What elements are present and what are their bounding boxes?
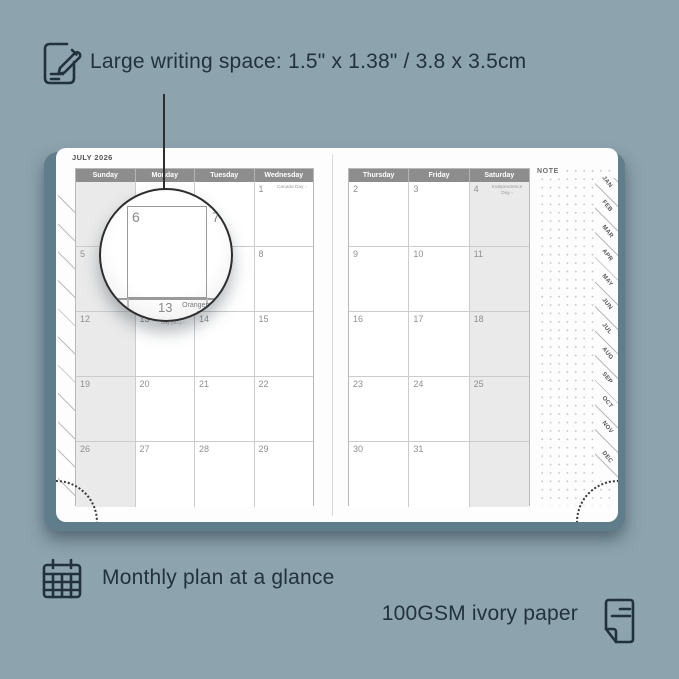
day-header: Sunday bbox=[76, 169, 136, 182]
calendar-cell: 30 bbox=[349, 442, 409, 507]
month-title: JULY 2026 bbox=[72, 153, 113, 162]
day-header: Thursday bbox=[349, 169, 409, 182]
calendar-cell: 8 bbox=[255, 247, 314, 312]
calendar-cell: 10 bbox=[409, 247, 469, 312]
calendar-cell: 17 bbox=[409, 312, 469, 377]
zoomed-grid-line bbox=[127, 299, 129, 320]
tab-jun: JUN bbox=[600, 297, 617, 316]
calendar-cell: 27 bbox=[136, 442, 196, 507]
pointer-line bbox=[163, 94, 165, 195]
bottom-left-annotation-text: Monthly plan at a glance bbox=[102, 566, 334, 590]
date-number: 10 bbox=[413, 249, 423, 259]
pencil-note-icon bbox=[38, 34, 86, 88]
holiday-line-1: Orangemen's Day bbox=[175, 302, 231, 320]
tab-feb: FEB bbox=[600, 199, 617, 218]
calendar-cell: 20 bbox=[136, 377, 196, 442]
date-number: 24 bbox=[413, 379, 423, 389]
calendar-cell: 12 bbox=[76, 312, 136, 377]
zoomed-date-number: 6 bbox=[132, 209, 140, 225]
tab-sep: SEP bbox=[600, 371, 617, 390]
date-number: 28 bbox=[199, 444, 209, 454]
holiday-label: Independence Day ▫ bbox=[490, 185, 524, 197]
calendar-cell: 2 bbox=[349, 182, 409, 247]
day-header: Tuesday bbox=[195, 169, 255, 182]
calendar-cell: 18 bbox=[470, 312, 529, 377]
calendar-cell: 25 bbox=[470, 377, 529, 442]
calendar-cell: 9 bbox=[349, 247, 409, 312]
calendar-cell: 22 bbox=[255, 377, 314, 442]
calendar-grid-icon bbox=[40, 556, 84, 600]
date-number: 21 bbox=[199, 379, 209, 389]
date-number: 16 bbox=[353, 314, 363, 324]
calendar-cell: 11 bbox=[470, 247, 529, 312]
date-number: 12 bbox=[80, 314, 90, 324]
product-image: Large writing space: 1.5" x 1.38" / 3.8 … bbox=[0, 0, 679, 679]
date-number: 9 bbox=[353, 249, 358, 259]
date-number: 27 bbox=[140, 444, 150, 454]
calendar-cell: 4Independence Day ▫ bbox=[470, 182, 529, 247]
date-number: 2 bbox=[353, 184, 358, 194]
calendar-cell: 23 bbox=[349, 377, 409, 442]
calendar-cell: 29 bbox=[255, 442, 314, 507]
calendar-cell: 16 bbox=[349, 312, 409, 377]
tab-nov: NOV bbox=[600, 420, 617, 439]
calendar-cell bbox=[470, 442, 529, 507]
tab-dec: DEC bbox=[600, 450, 617, 469]
day-header-row: Sunday Monday Tuesday Wednesday bbox=[76, 169, 313, 182]
date-number: 17 bbox=[413, 314, 423, 324]
date-number: 15 bbox=[259, 314, 269, 324]
calendar-cell: 3 bbox=[409, 182, 469, 247]
day-header-row: Thursday Friday Saturday bbox=[349, 169, 529, 182]
date-number: 18 bbox=[474, 314, 484, 324]
tab-jul: JUL bbox=[600, 322, 617, 341]
bottom-right-annotation-text: 100GSM ivory paper bbox=[300, 602, 578, 626]
calendar-cell: 19 bbox=[76, 377, 136, 442]
date-number: 8 bbox=[259, 249, 264, 259]
calendar-cell: 14 bbox=[195, 312, 255, 377]
tab-jan: JAN bbox=[600, 175, 617, 194]
paper-sheet-icon bbox=[597, 595, 641, 647]
date-number: 26 bbox=[80, 444, 90, 454]
date-number: 4 bbox=[474, 184, 479, 194]
tab-may: MAY bbox=[600, 273, 617, 292]
zoomed-holiday-label: Orangemen's Day (N.I.) ▫ bbox=[175, 302, 231, 322]
calendar-cell: 1Canada Day ▫ bbox=[255, 182, 314, 247]
date-number: 25 bbox=[474, 379, 484, 389]
tab-aug: AUG bbox=[600, 346, 617, 365]
day-header: Monday bbox=[136, 169, 196, 182]
calendar-cell: 31 bbox=[409, 442, 469, 507]
date-number: 23 bbox=[353, 379, 363, 389]
zoomed-date-number: 13 bbox=[158, 300, 172, 315]
calendar-cell: 21 bbox=[195, 377, 255, 442]
date-number: 29 bbox=[259, 444, 269, 454]
date-number: 5 bbox=[80, 249, 85, 259]
date-number: 3 bbox=[413, 184, 418, 194]
date-number: 30 bbox=[353, 444, 363, 454]
calendar-cell: 28 bbox=[195, 442, 255, 507]
date-number: 1 bbox=[259, 184, 264, 194]
day-header: Friday bbox=[409, 169, 469, 182]
tab-apr: APR bbox=[600, 248, 617, 267]
date-number: 22 bbox=[259, 379, 269, 389]
calendar-cell: 24 bbox=[409, 377, 469, 442]
date-number: 31 bbox=[413, 444, 423, 454]
tab-mar: MAR bbox=[600, 224, 617, 243]
date-number: 20 bbox=[140, 379, 150, 389]
day-header: Saturday bbox=[470, 169, 529, 182]
holiday-label: Canada Day ▫ bbox=[275, 185, 308, 191]
note-label: NOTE bbox=[537, 168, 562, 176]
date-number: 11 bbox=[474, 249, 483, 259]
month-tab-strip: JAN FEB MAR APR MAY JUN JUL AUG SEP OCT … bbox=[595, 178, 618, 478]
page-gutter bbox=[332, 154, 333, 516]
date-number: 19 bbox=[80, 379, 90, 389]
day-header: Wednesday bbox=[255, 169, 314, 182]
zoom-bubble: 6 7 13 Orangemen's Day (N.I.) ▫ bbox=[99, 188, 233, 322]
calendar-grid-right: Thursday Friday Saturday 2 3 4Independen… bbox=[348, 168, 530, 506]
top-annotation-text: Large writing space: 1.5" x 1.38" / 3.8 … bbox=[90, 50, 526, 74]
calendar-cell: 15 bbox=[255, 312, 314, 377]
binding-hatch bbox=[58, 186, 75, 506]
tab-oct: OCT bbox=[600, 395, 617, 414]
zoomed-date-number: 7 bbox=[212, 209, 220, 225]
